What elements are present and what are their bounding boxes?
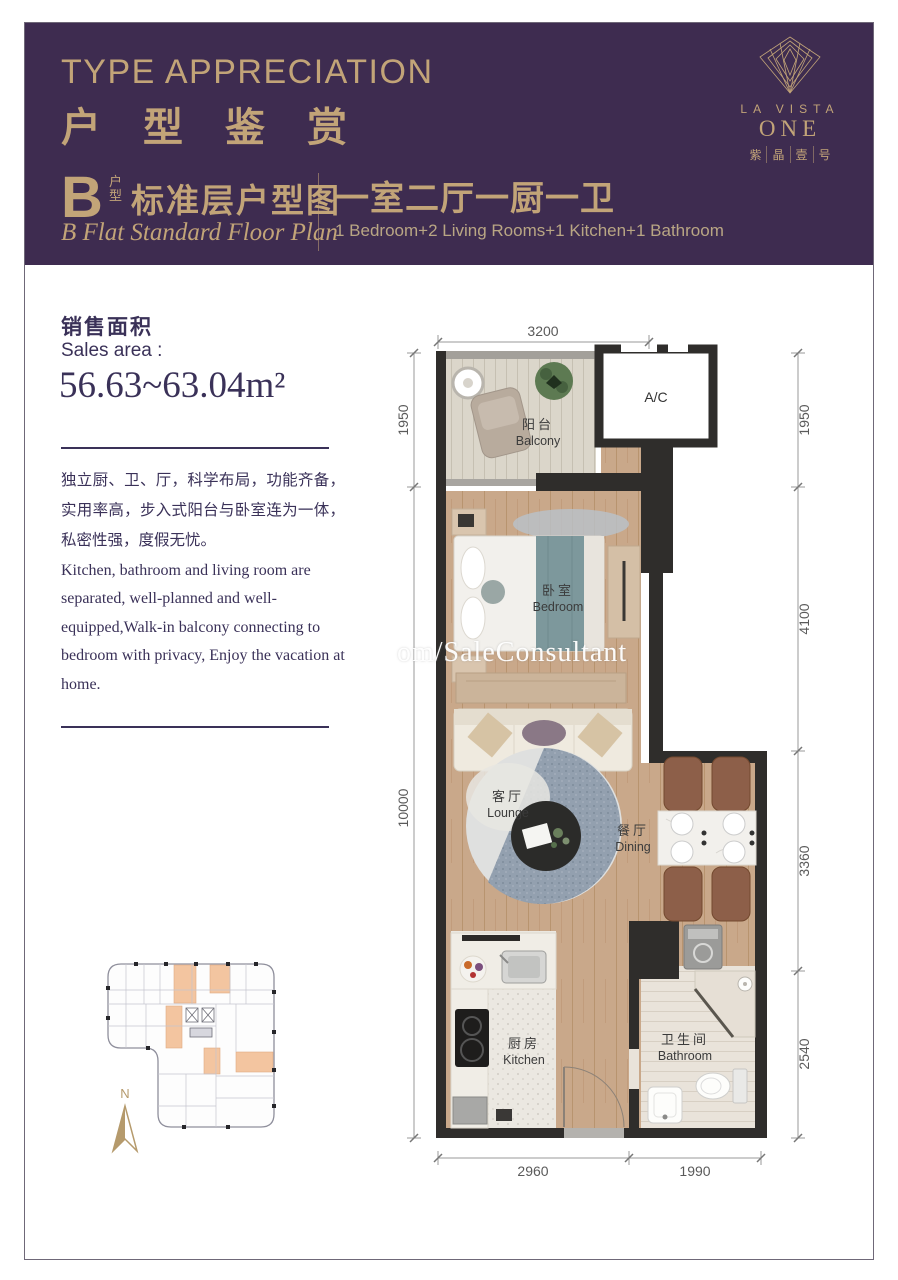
plan-code-sub-bottom: 型	[109, 189, 122, 203]
dim-right-1950: 1950	[796, 404, 812, 435]
logo-cn-char: 晶	[766, 146, 789, 163]
content-frame: TYPE APPRECIATION 户型鉴赏 B 户 型 标准层户型图 B Fl…	[24, 22, 874, 1260]
logo-name-main: ONE	[725, 116, 855, 142]
kitchen-label-zh: 厨房	[508, 1036, 540, 1051]
layout-summary-zh: 一室二厅一厨一卫	[335, 171, 615, 220]
dim-bottom-2960: 2960	[517, 1163, 548, 1179]
dim-right-3360: 3360	[796, 845, 812, 876]
key-plan: N	[86, 946, 316, 1171]
dim-left-10000: 10000	[396, 788, 411, 827]
page-title-en: TYPE APPRECIATION	[61, 53, 434, 92]
dim-left-1950: 1950	[396, 404, 411, 435]
logo-cn-char: 紫	[744, 146, 766, 163]
dining-chair	[664, 757, 702, 811]
dim-top: 3200	[527, 323, 558, 339]
bed	[454, 536, 604, 651]
divider-rule	[61, 726, 329, 728]
dim-right-4100: 4100	[796, 603, 812, 634]
stove	[455, 1009, 489, 1067]
description-en: Kitchen, bathroom and living room are se…	[61, 557, 355, 699]
lounge-label-zh: 客厅	[492, 789, 524, 804]
sales-area-value: 56.63~63.04m²	[59, 364, 285, 407]
sales-area-label-zh: 销售面积	[61, 311, 153, 341]
cabinet	[453, 1097, 487, 1124]
page-title-zh: 户型鉴赏	[61, 95, 389, 153]
floor-plan: A/C	[396, 321, 856, 1181]
plan-subtitle-zh: 标准层户型图	[131, 174, 341, 222]
divider-rule	[61, 447, 329, 449]
plan-code-sub-top: 户	[109, 175, 122, 189]
sink	[500, 951, 546, 983]
diamond-logo-icon	[758, 35, 822, 95]
dining-table	[658, 811, 756, 865]
washing-machine	[684, 925, 722, 969]
bedroom-label-zh: 卧室	[542, 583, 574, 598]
logo-name-top: LA VISTA	[725, 102, 855, 116]
washbasin	[648, 1087, 682, 1123]
brochure-page: TYPE APPRECIATION 户型鉴赏 B 户 型 标准层户型图 B Fl…	[0, 0, 898, 1280]
balcony-label-zh: 阳台	[522, 417, 554, 432]
sales-area-label-en: Sales area :	[61, 340, 162, 362]
dining-label-zh: 餐厅	[617, 823, 649, 838]
watermark: om/SaleConsultant	[397, 637, 627, 669]
lounge-label-en: Lounge	[487, 806, 529, 820]
dim-bottom-1990: 1990	[679, 1163, 710, 1179]
logo-cn-char: 号	[813, 146, 836, 163]
dining-chair	[664, 867, 702, 921]
dining-label-en: Dining	[615, 840, 650, 854]
kitchen-label-en: Kitchen	[503, 1053, 545, 1067]
bedroom-label-en: Bedroom	[533, 600, 584, 614]
bathroom-label-en: Bathroom	[658, 1049, 712, 1063]
header-divider	[318, 173, 319, 251]
layout-summary-en: 1 Bedroom+2 Living Rooms+1 Kitchen+1 Bat…	[335, 221, 724, 241]
console-table	[456, 673, 626, 703]
dim-right-2540: 2540	[796, 1038, 812, 1069]
logo-name-cn: 紫 晶 壹 号	[725, 146, 855, 163]
ac-unit: A/C	[599, 342, 713, 443]
north-compass: N	[113, 1086, 137, 1151]
bathroom-label-zh: 卫生间	[661, 1032, 709, 1047]
ac-label: A/C	[644, 389, 667, 405]
description-zh: 独立厨、卫、厅，科学布局，功能齐备，实用率高，步入式阳台与卧室连为一体，私密性强…	[61, 466, 345, 557]
dining-chair	[712, 757, 750, 811]
balcony-label-en: Balcony	[516, 434, 561, 448]
brand-logo: LA VISTA ONE 紫 晶 壹 号	[725, 35, 855, 163]
plan-code-sub: 户 型	[109, 175, 122, 203]
header-band: TYPE APPRECIATION 户型鉴赏 B 户 型 标准层户型图 B Fl…	[25, 23, 873, 265]
plan-subtitle-en: B Flat Standard Floor Plan	[61, 219, 338, 247]
plate	[460, 956, 486, 982]
logo-cn-char: 壹	[790, 146, 813, 163]
north-label: N	[120, 1086, 129, 1101]
dining-chair	[712, 867, 750, 921]
